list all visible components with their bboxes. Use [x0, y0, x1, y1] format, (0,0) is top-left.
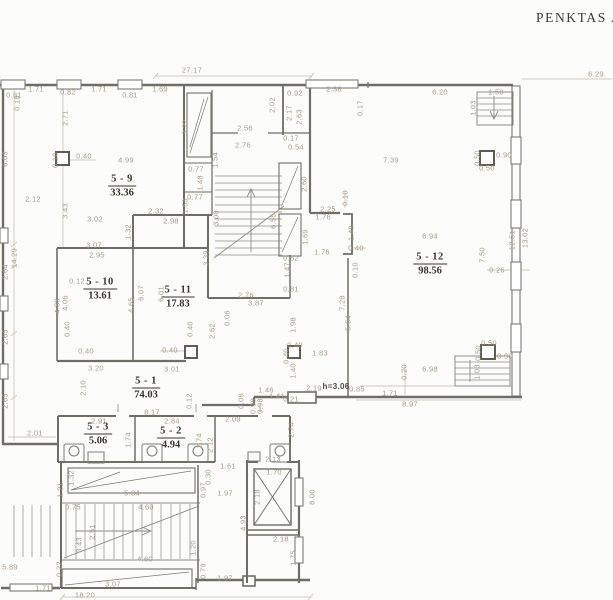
dimension-label: 0.06 — [237, 393, 245, 409]
dimension-label: 0.92 — [287, 89, 303, 97]
dimension-label: 6.94 — [422, 232, 438, 240]
dimension-label: 1.03 — [473, 364, 481, 380]
dimension-label: 0.40 — [78, 347, 94, 355]
room-number: 5 - 11 — [162, 285, 195, 298]
dimension-label: 8.17 — [144, 408, 160, 416]
room-area: 13.61 — [83, 290, 117, 302]
dimension-label: 0.81 — [283, 285, 299, 293]
dimension-label: 2.56 — [237, 124, 253, 132]
dimension-label: 0.17 — [356, 100, 364, 116]
dimension-label: 3.39 — [202, 250, 210, 266]
dimension-label: 2.17 — [285, 105, 293, 121]
dimension-label: 6.07 — [137, 285, 145, 301]
dimension-label: 3.07 — [86, 241, 102, 249]
dimension-label: 2.74 — [287, 422, 295, 438]
dimension-label: 5.64 — [344, 315, 352, 331]
dimension-label: 1.97 — [217, 574, 233, 582]
dimension-label: 0.10 — [341, 190, 349, 206]
dimension-label: 3.87 — [248, 299, 264, 307]
dimension-label: 8.97 — [402, 400, 418, 408]
dimension-label: 2.62 — [208, 323, 216, 339]
label-layer: 0.811.710.821.710.811.6927.170.922.386.2… — [0, 0, 613, 600]
room-area: 33.36 — [108, 187, 136, 199]
dimension-label: 2.63 — [295, 109, 303, 125]
room-label-5-2: 5 - 24.94 — [157, 426, 185, 451]
room-number: 5 - 2 — [157, 426, 185, 439]
dimension-label: 0.40 — [76, 152, 92, 160]
dimension-label: 0.90 — [497, 352, 513, 360]
dimension-label: 0.82 — [60, 88, 76, 96]
dimension-label: 0.12 — [185, 393, 193, 409]
room-label-5-3: 5 - 35.06 — [84, 422, 112, 447]
dimension-label: 2.18 — [253, 489, 261, 505]
dimension-label: 12.51 — [508, 230, 516, 250]
dimension-label: 2.01 — [27, 429, 43, 437]
dimension-label: 1.21 — [56, 482, 64, 498]
dimension-label: 4.06 — [61, 295, 69, 311]
dimension-label: 0.40 — [186, 321, 194, 337]
dimension-label: 1.70 — [266, 468, 282, 476]
dimension-label: 6.29 — [588, 70, 604, 78]
dimension-label: 13.02 — [521, 228, 529, 248]
dimension-label: 0.10 — [51, 152, 59, 168]
dimension-label: 0.90 — [496, 151, 512, 159]
room-area: 98.56 — [413, 265, 447, 277]
dimension-label: 4.99 — [118, 156, 134, 164]
dimension-label: 0.77 — [187, 193, 203, 201]
dimension-label: 1.71 — [91, 85, 107, 93]
height-annotation: h=3.06 — [323, 383, 350, 391]
dimension-label: 27.17 — [182, 66, 202, 74]
room-number: 5 - 9 — [108, 174, 136, 187]
dimension-label: 0.06 — [223, 310, 231, 326]
dimension-label: 1.74 — [195, 433, 203, 449]
dimension-label: 1.03 — [469, 100, 477, 116]
dimension-label: 1.20 — [189, 540, 197, 556]
dimension-label: 1.54 — [211, 152, 219, 168]
dimension-label: 0.79 — [199, 563, 207, 579]
dimension-label: 0.40 — [162, 346, 178, 354]
dimension-label: 1.83 — [312, 349, 328, 357]
dimension-label: 14.29 — [10, 248, 18, 268]
dimension-label: 0.82 — [283, 254, 299, 262]
dimension-label: 0.50 — [481, 339, 497, 347]
dimension-label: 4.60 — [138, 503, 154, 511]
dimension-label: 4.93 — [239, 515, 247, 531]
dimension-label: 0.10 — [351, 262, 359, 278]
dimension-label: 3.20 — [88, 364, 104, 372]
dimension-label: 1.76 — [314, 248, 330, 256]
dimension-label: 2.84 — [164, 417, 180, 425]
dimension-label: 0.54 — [288, 143, 304, 151]
dimension-label: 0.17 — [283, 134, 299, 142]
floorplan-page: PENKTAS AUK 0.811.710.821.710.811.6927.1… — [0, 0, 613, 600]
room-number: 5 - 10 — [83, 277, 117, 290]
dimension-label: 0.40 — [63, 321, 71, 337]
dimension-label: 3.02 — [87, 215, 103, 223]
room-area: 74.03 — [132, 389, 160, 401]
dimension-label: 0.21 — [283, 395, 299, 403]
room-label-5-9: 5 - 933.36 — [108, 174, 136, 199]
dimension-label: 2.98 — [163, 217, 179, 225]
room-area: 17.83 — [162, 298, 195, 310]
dimension-label: 2.13 — [265, 455, 281, 463]
dimension-label: 3.43 — [75, 537, 83, 553]
dimension-label: 1.71 — [28, 85, 44, 93]
dimension-label: 2.51 — [88, 524, 96, 540]
dimension-label: 1.69 — [301, 229, 309, 245]
dimension-label: 0.98 — [256, 398, 264, 414]
dimension-label: 2.32 — [148, 207, 164, 215]
room-label-5-12: 5 - 1298.56 — [413, 252, 447, 277]
dimension-label: 0.97 — [199, 482, 207, 498]
room-label-5-10: 5 - 1013.61 — [83, 277, 117, 302]
dimension-label: 2.18 — [273, 535, 289, 543]
dimension-label: 0.85 — [349, 385, 365, 393]
dimension-label: 2.95 — [89, 251, 105, 259]
dimension-label: 1.98 — [289, 317, 297, 333]
dimension-label: 2.12 — [206, 437, 214, 453]
dimension-label: 1.53 — [181, 198, 189, 214]
dimension-label: 1.76 — [315, 213, 331, 221]
dimension-label: 7.50 — [478, 247, 486, 263]
room-label-5-1: 5 - 174.03 — [132, 376, 160, 401]
dimension-label: 1.69 — [152, 85, 168, 93]
dimension-label: 1.71 — [382, 389, 398, 397]
dimension-label: 1.47 — [283, 262, 291, 278]
dimension-label: 2.38 — [326, 85, 342, 93]
dimension-label: 0.20 — [400, 364, 408, 380]
room-area: 4.94 — [157, 439, 185, 451]
room-number: 5 - 12 — [413, 252, 447, 265]
dimension-label: 0.50 — [479, 164, 495, 172]
dimension-label: 3.43 — [61, 203, 69, 219]
dimension-label: 6.55 — [269, 213, 277, 229]
dimension-label: 1.48 — [196, 175, 204, 191]
dimension-label: 3.00 — [212, 210, 220, 226]
dimension-label: 2.60 — [300, 176, 308, 192]
room-label-5-11: 5 - 1117.83 — [162, 285, 195, 310]
dimension-label: 6.03 — [1, 151, 9, 167]
dimension-label: 2.10 — [79, 380, 87, 396]
dimension-label: 0.75 — [65, 503, 81, 511]
room-number: 5 - 1 — [132, 376, 160, 389]
dimension-label: 4.60 — [137, 555, 153, 563]
dimension-label: 0.50 — [474, 345, 482, 361]
dimension-label: 0.22 — [55, 561, 63, 577]
dimension-label: 4.65 — [127, 297, 135, 313]
room-number: 5 - 3 — [84, 422, 112, 435]
dimension-label: 1.75 — [289, 550, 297, 566]
dimension-label: 3.07 — [105, 580, 121, 588]
dimension-label: 18.20 — [75, 591, 95, 599]
dimension-label: 3.01 — [164, 365, 180, 373]
dimension-label: 1.49 — [347, 225, 355, 241]
dimension-label: 0.18 — [13, 95, 21, 111]
dimension-label: 2.65 — [1, 329, 9, 345]
dimension-label: 2.71 — [61, 110, 69, 126]
dimension-label: 6.20 — [432, 88, 448, 96]
dimension-label: 1.61 — [220, 462, 236, 470]
dimension-label: 7.28 — [338, 295, 346, 311]
dimension-label: 1.32 — [124, 224, 132, 240]
dimension-label: 3.22 — [181, 119, 189, 135]
dimension-label: 0.40 — [282, 348, 290, 364]
dimension-label: 2.12 — [25, 195, 41, 203]
dimension-label: 6.98 — [422, 365, 438, 373]
dimension-label: 5.04 — [124, 489, 140, 497]
dimension-label: 1.32 — [67, 470, 75, 486]
dimension-label: 0.81 — [122, 91, 138, 99]
dimension-label: 1.71 — [35, 584, 51, 592]
dimension-label: 2.64 — [1, 264, 9, 280]
dimension-label: 0.40 — [348, 244, 364, 252]
dimension-label: 2.65 — [1, 393, 9, 409]
dimension-label: 2.19 — [306, 384, 322, 392]
dimension-label: 8.00 — [308, 489, 316, 505]
dimension-label: 2.76 — [235, 141, 251, 149]
dimension-label: 2.02 — [268, 97, 276, 113]
dimension-label: 1.50 — [488, 88, 504, 96]
dimension-label: 5.89 — [2, 563, 18, 571]
dimension-label: 7.39 — [383, 156, 399, 164]
dimension-label: 1.97 — [217, 489, 233, 497]
dimension-label: 0.26 — [489, 266, 505, 274]
dimension-label: 1.74 — [124, 432, 132, 448]
dimension-label: 2.09 — [225, 415, 241, 423]
dimension-label: 1.40 — [289, 363, 297, 379]
room-area: 5.06 — [84, 435, 112, 447]
dimension-label: 0.77 — [188, 165, 204, 173]
